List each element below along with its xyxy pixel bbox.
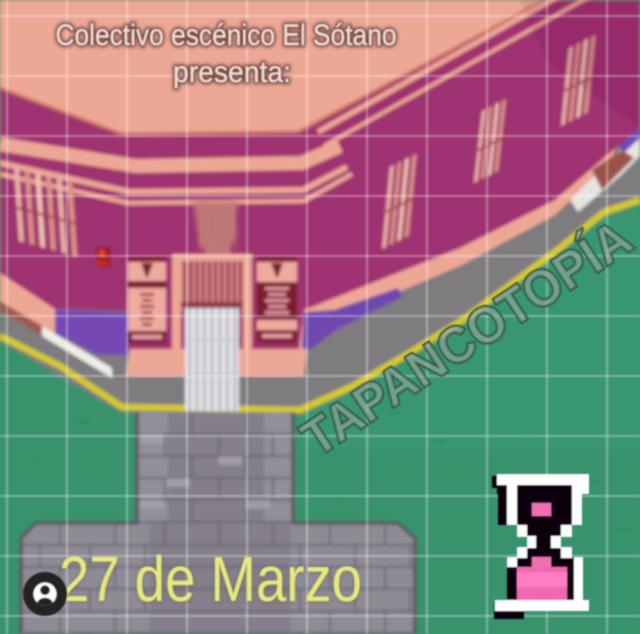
- svg-text:presenta:: presenta:: [173, 56, 291, 89]
- svg-text:27 de Marzo: 27 de Marzo: [59, 543, 362, 615]
- svg-text:Colectivo escénico El Sótano: Colectivo escénico El Sótano: [56, 19, 397, 52]
